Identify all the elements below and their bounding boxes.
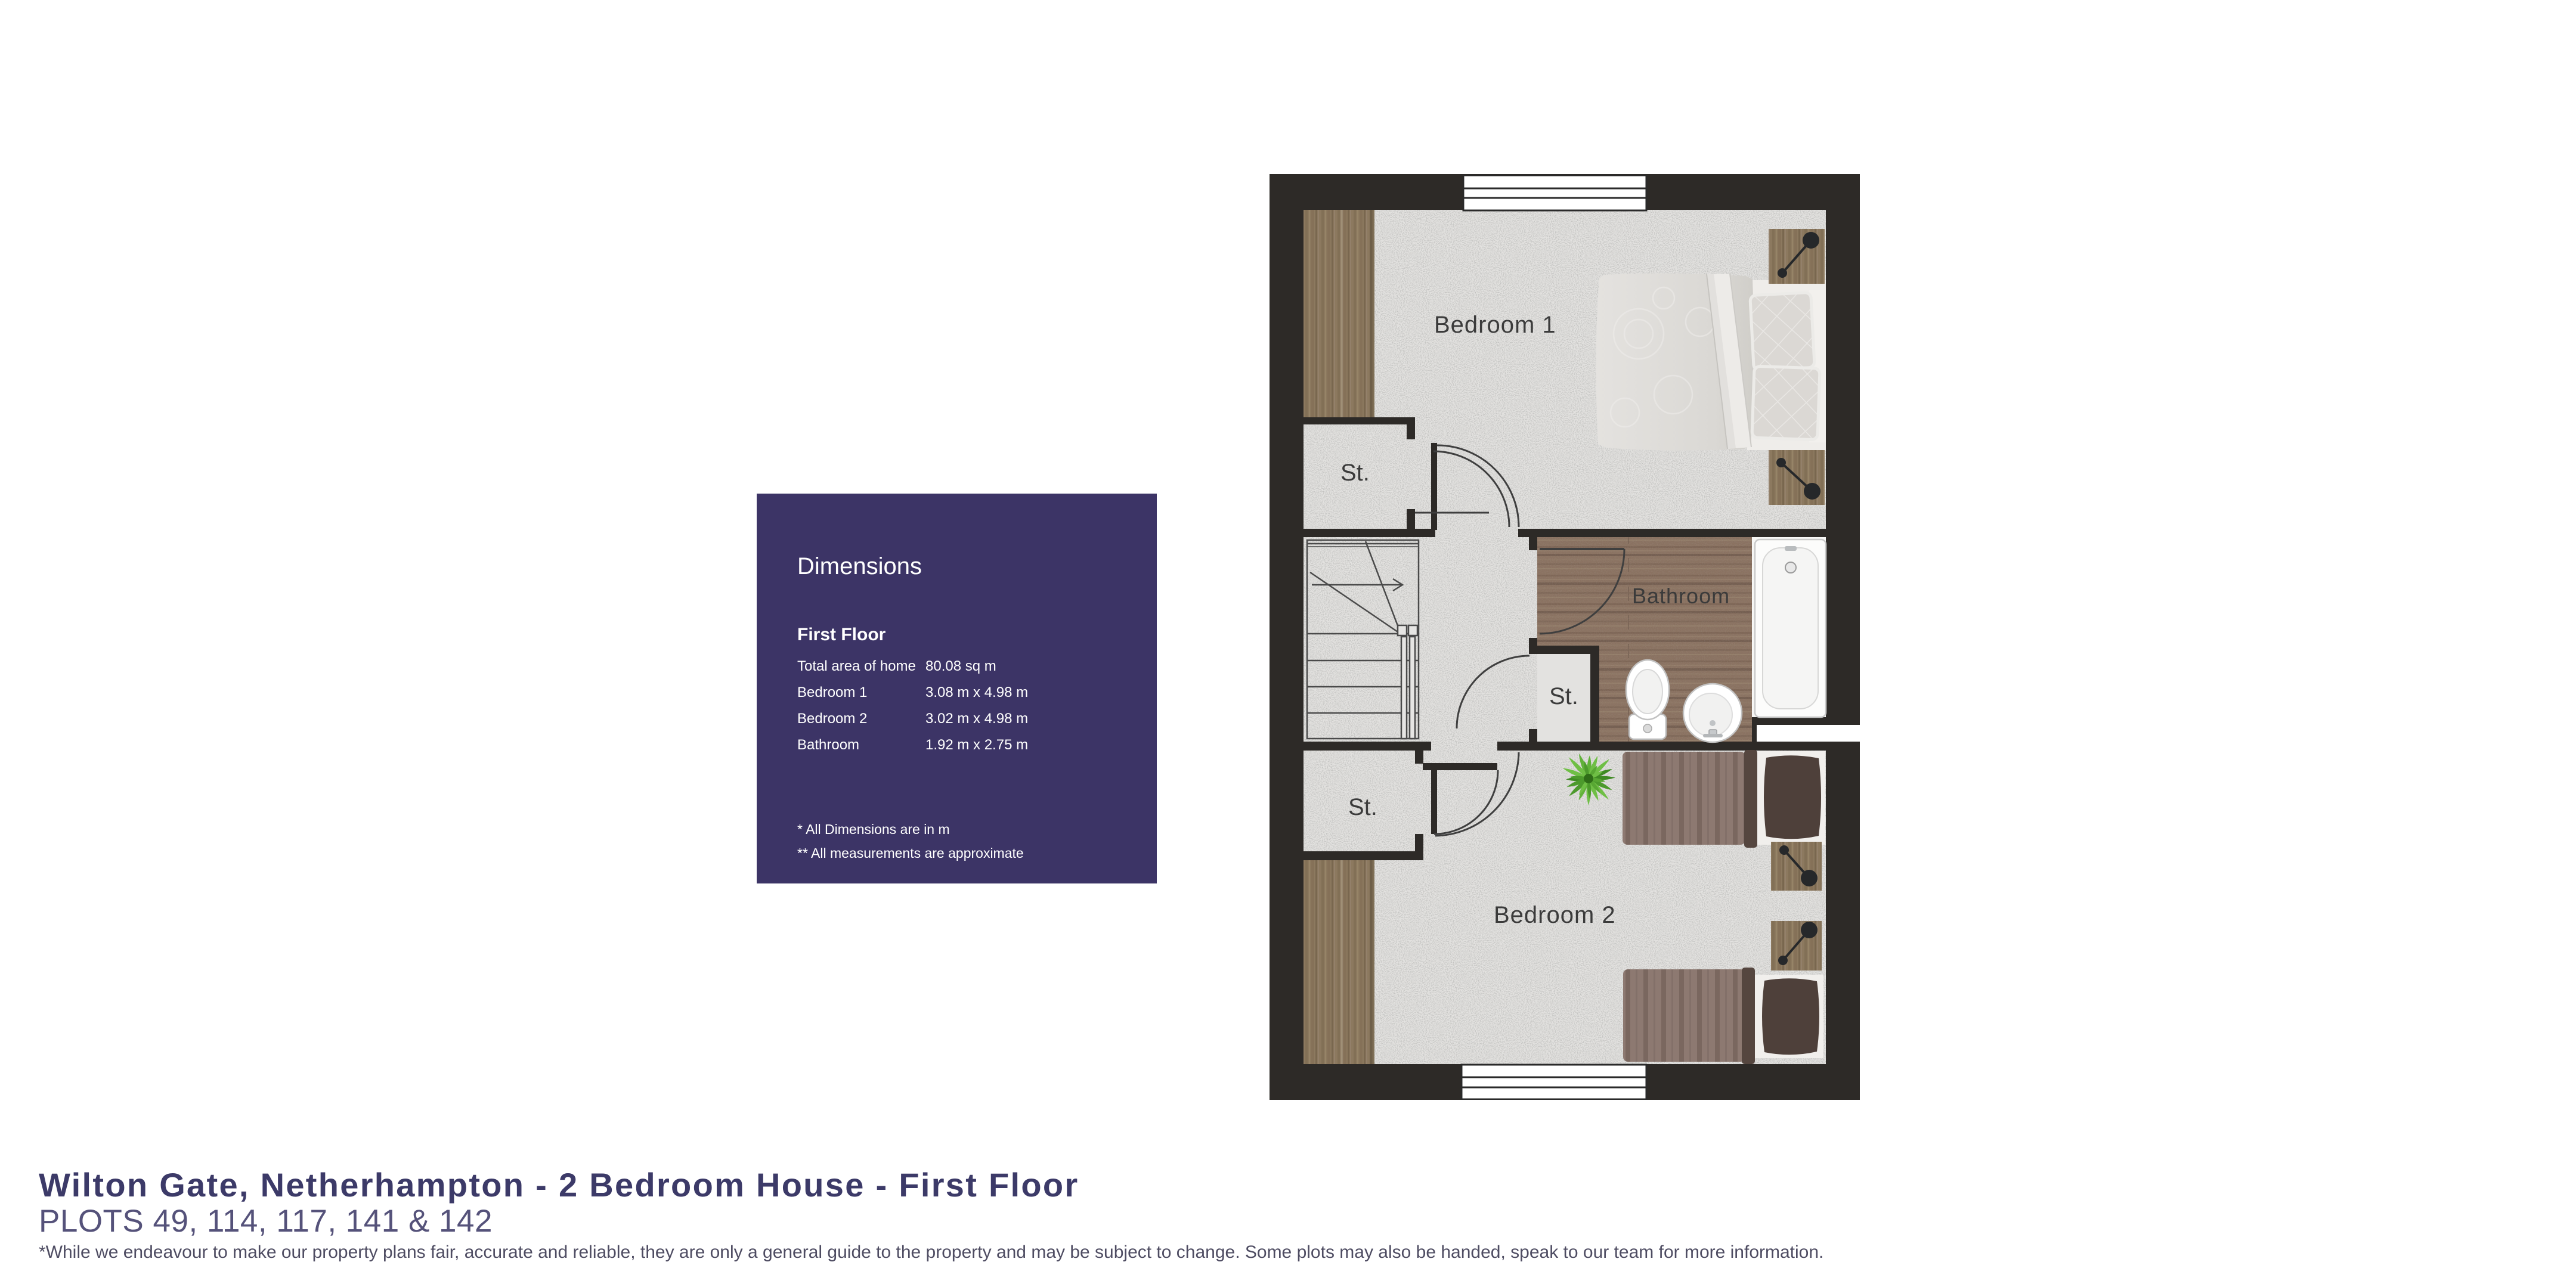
svg-text:Bedroom 1: Bedroom 1 bbox=[1434, 312, 1556, 338]
svg-text:St.: St. bbox=[1348, 794, 1377, 820]
svg-text:Bedroom 2: Bedroom 2 bbox=[1494, 902, 1616, 928]
svg-text:St.: St. bbox=[1549, 683, 1578, 709]
svg-text:Bathroom: Bathroom bbox=[1632, 584, 1730, 608]
svg-text:St.: St. bbox=[1340, 460, 1370, 486]
